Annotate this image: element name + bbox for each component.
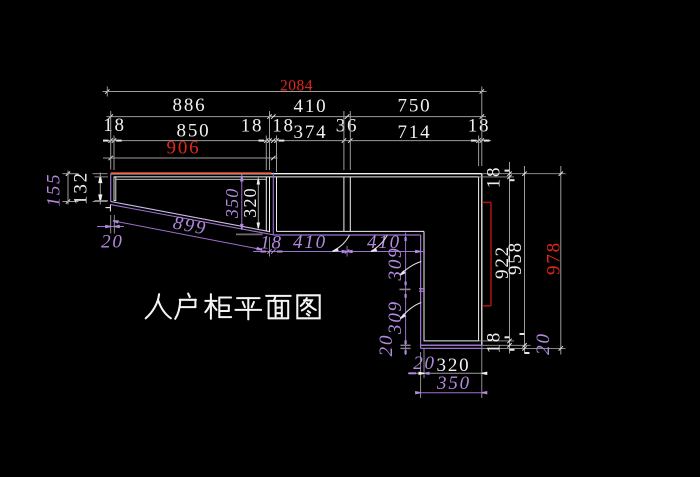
svg-text:2084: 2084 — [280, 78, 313, 95]
svg-text:155: 155 — [44, 173, 65, 207]
svg-text:320: 320 — [240, 187, 260, 218]
svg-text:374: 374 — [294, 122, 328, 143]
svg-text:18: 18 — [241, 116, 264, 137]
svg-text:20: 20 — [101, 231, 124, 252]
svg-text:714: 714 — [398, 122, 432, 143]
svg-text:18: 18 — [484, 331, 505, 354]
svg-text:18: 18 — [484, 166, 505, 189]
svg-text:978: 978 — [544, 241, 565, 275]
svg-text:309: 309 — [385, 247, 406, 282]
svg-text:18: 18 — [103, 115, 126, 136]
svg-text:410: 410 — [293, 232, 327, 253]
svg-text:350: 350 — [436, 373, 471, 394]
svg-text:886: 886 — [173, 95, 207, 116]
svg-text:20: 20 — [533, 332, 554, 355]
svg-text:36: 36 — [336, 116, 359, 137]
svg-text:410: 410 — [294, 96, 328, 117]
svg-text:18: 18 — [468, 116, 491, 137]
svg-text:958: 958 — [505, 241, 526, 275]
svg-text:18: 18 — [260, 232, 283, 253]
svg-text:20: 20 — [413, 353, 436, 374]
svg-text:132: 132 — [71, 171, 92, 205]
svg-text:750: 750 — [398, 96, 432, 117]
svg-text:18: 18 — [272, 116, 295, 137]
svg-text:906: 906 — [167, 138, 201, 159]
svg-text:20: 20 — [376, 334, 397, 357]
